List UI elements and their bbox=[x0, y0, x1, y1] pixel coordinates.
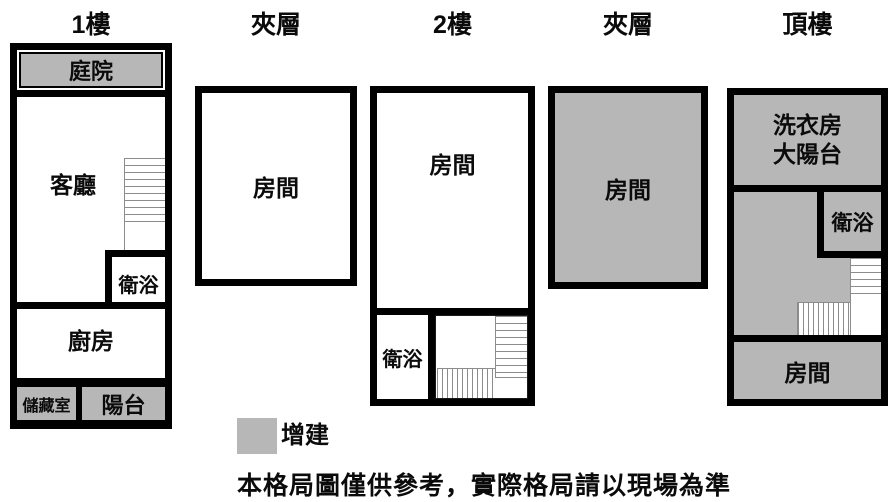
wall-divider bbox=[17, 302, 165, 309]
floor-title-mezzanine-1: 夾層 bbox=[195, 10, 357, 40]
wall-divider bbox=[428, 315, 435, 399]
legend-addition-swatch bbox=[237, 418, 277, 454]
room-bathroom: 衛浴 bbox=[105, 250, 165, 309]
room-laundry-line2: 大陽台 bbox=[773, 140, 842, 169]
floor-plan-mezzanine-2: 房間 bbox=[548, 86, 708, 289]
floor-title-top-floor: 頂樓 bbox=[727, 10, 888, 40]
floor-plan-diagram: 1樓 夾層 2樓 夾層 頂樓 庭院 客廳 衛浴 廚房 儲藏室 陽台 房間 房間 … bbox=[0, 0, 889, 502]
staircase bbox=[124, 158, 165, 250]
room-laundry-line1: 洗衣房 bbox=[773, 111, 842, 140]
floor-plan-2f: 房間 衛浴 bbox=[370, 86, 535, 406]
floor-title-1f: 1樓 bbox=[10, 10, 172, 40]
wall-divider bbox=[17, 90, 165, 97]
wall-divider bbox=[734, 335, 881, 342]
stair-treads bbox=[797, 302, 850, 335]
room-bathroom: 衛浴 bbox=[817, 192, 881, 258]
room-room: 房間 bbox=[734, 342, 881, 399]
annex-row: 儲藏室 陽台 bbox=[17, 385, 165, 422]
room-courtyard: 庭院 bbox=[19, 52, 163, 88]
floor-plan-1f: 庭院 客廳 衛浴 廚房 儲藏室 陽台 bbox=[10, 43, 172, 429]
room-laundry-balcony: 洗衣房 大陽台 bbox=[734, 95, 881, 185]
stair-treads bbox=[125, 158, 165, 222]
staircase bbox=[435, 315, 528, 399]
room-balcony: 陽台 bbox=[82, 387, 165, 420]
disclaimer-text: 本格局圖僅供參考，實際格局請以現場為準 bbox=[237, 466, 731, 502]
wall-divider bbox=[377, 308, 528, 315]
wall-divider bbox=[17, 378, 165, 385]
legend-addition-label: 增建 bbox=[281, 419, 329, 453]
stair-treads bbox=[495, 316, 527, 378]
stair-treads bbox=[437, 368, 495, 398]
room-storage: 儲藏室 bbox=[17, 387, 76, 420]
floor-plan-top-floor: 洗衣房 大陽台 衛浴 房間 bbox=[727, 88, 888, 406]
floor-plan-mezzanine-1: 房間 bbox=[195, 86, 357, 286]
staircase bbox=[850, 258, 881, 335]
wall-divider bbox=[734, 185, 881, 192]
stair-hall: 衛浴 bbox=[734, 192, 881, 335]
floor-title-mezzanine-2: 夾層 bbox=[548, 10, 708, 40]
room-room: 房間 bbox=[377, 148, 528, 178]
floor-title-2f: 2樓 bbox=[370, 10, 535, 40]
stair-treads bbox=[851, 258, 881, 299]
room-living-room: 客廳 bbox=[17, 170, 129, 200]
room-kitchen: 廚房 bbox=[17, 309, 165, 369]
room-bathroom: 衛浴 bbox=[377, 315, 428, 399]
